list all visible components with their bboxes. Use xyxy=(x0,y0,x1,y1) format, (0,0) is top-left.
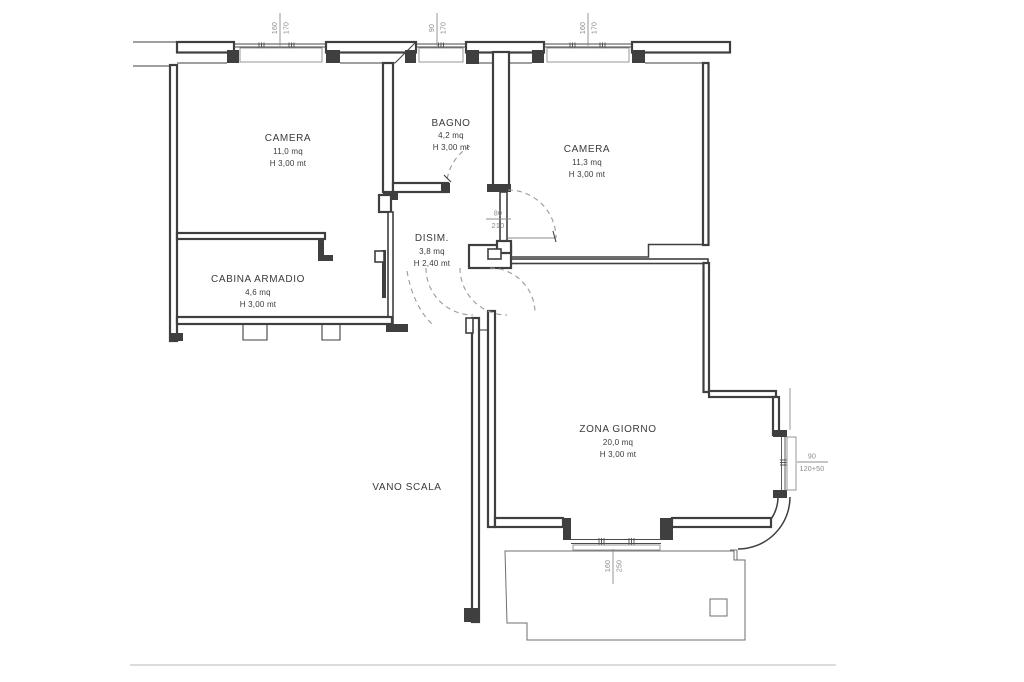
wall-foot xyxy=(487,184,511,192)
glazing-ticks xyxy=(780,460,787,465)
east-exterior-wall xyxy=(703,63,790,498)
room-name: VANO SCALA xyxy=(372,482,441,493)
camera2-west-wall xyxy=(500,192,507,247)
room-label-cabina: CABINA ARMADIO 4,6 mq H 3,00 mt xyxy=(211,274,305,309)
room-label-disim: DISIM. 3,8 mq H 2,40 mt xyxy=(414,233,451,268)
wall-foot xyxy=(170,333,183,341)
zona-west-wall xyxy=(488,311,495,527)
hall-door-arc xyxy=(508,190,556,238)
dim-height: 120+50 xyxy=(800,466,825,473)
zona-east-wall-upper xyxy=(704,263,710,392)
wall-cap xyxy=(466,318,473,333)
vano-scala-wall xyxy=(464,318,488,622)
wall-foot xyxy=(318,255,333,261)
wall-segment xyxy=(177,42,234,53)
bagno-south-wall xyxy=(393,183,450,193)
room-name: BAGNO xyxy=(431,118,470,129)
dim-width: 90 xyxy=(808,454,816,461)
dim-window-top-right: 160 170 xyxy=(580,13,599,46)
window-jamb xyxy=(773,430,787,437)
disim-west-wall xyxy=(375,195,393,325)
window-top-center xyxy=(416,43,466,63)
stair-tooth xyxy=(243,324,267,340)
camera1-cabina-wall xyxy=(177,233,333,261)
camera2-east-wall xyxy=(703,63,709,245)
room-area: 20,0 mq xyxy=(603,438,633,447)
window-sill xyxy=(419,48,463,62)
dim-height: 170 xyxy=(592,22,599,34)
room-area: 4,2 mq xyxy=(438,131,464,140)
door-jamb xyxy=(441,183,450,193)
disim-door-arc xyxy=(407,271,433,325)
dim-window-right: 90 120+50 xyxy=(797,454,828,474)
door-jamb xyxy=(375,251,384,262)
room-height: H 3,00 mt xyxy=(240,300,277,309)
room-name: CAMERA xyxy=(564,144,610,155)
camera2-zona-wall xyxy=(490,245,708,264)
dim-width: 80 xyxy=(494,211,502,218)
entrance-door-arc-2 xyxy=(460,268,507,315)
wall-foot xyxy=(464,608,479,622)
dim-height: 170 xyxy=(284,22,291,34)
zona-north-wall xyxy=(490,259,708,264)
room-label-camera2: CAMERA 11,3 mq H 3,00 mt xyxy=(564,144,610,179)
window-sill xyxy=(240,48,322,62)
window-sill xyxy=(547,48,629,62)
room-name: CAMERA xyxy=(265,133,311,144)
entrance-door xyxy=(469,241,511,268)
room-name: ZONA GIORNO xyxy=(579,424,656,435)
dim-window-bottom: 160 250 xyxy=(605,549,624,584)
dim-window-top-center: 90 170 xyxy=(429,13,448,46)
camera2-south-face xyxy=(508,245,706,258)
bagno-camera2-wall xyxy=(487,52,511,247)
window-sill xyxy=(787,437,796,490)
window-sill xyxy=(573,545,660,550)
dim-window-top-left: 160 170 xyxy=(272,13,291,46)
dim-width: 160 xyxy=(605,560,612,572)
zona-door-arc xyxy=(490,268,535,313)
zona-east-wall-mid xyxy=(773,397,779,435)
room-label-camera1: CAMERA 11,0 mq H 3,00 mt xyxy=(265,133,311,168)
pillar xyxy=(710,599,727,616)
window-jamb xyxy=(227,50,239,63)
zona-step-wall xyxy=(709,391,776,397)
window-jamb xyxy=(532,50,544,63)
window-jamb xyxy=(632,50,645,63)
room-label-bagno: BAGNO 4,2 mq H 3,00 mt xyxy=(431,118,470,152)
room-label-vano-scala: VANO SCALA xyxy=(372,482,441,493)
room-area: 11,0 mq xyxy=(273,147,303,156)
door-frame-inner xyxy=(488,249,501,259)
room-area: 3,8 mq xyxy=(419,247,445,256)
room-height: H 3,00 mt xyxy=(600,450,637,459)
bagno-west-wall xyxy=(383,63,398,200)
entrance-door-arc xyxy=(426,268,473,315)
window-jamb xyxy=(773,490,787,498)
dim-height: 250 xyxy=(617,560,624,572)
dim-height: 170 xyxy=(441,22,448,34)
dim-width: 160 xyxy=(272,22,279,34)
dim-width: 160 xyxy=(580,22,587,34)
wall-pillar xyxy=(379,195,391,212)
dim-height: 210 xyxy=(491,221,504,230)
room-label-zona: ZONA GIORNO 20,0 mq H 3,00 mt xyxy=(579,424,656,459)
floor-plan-drawing: 160 170 90 170 160 170 80 210 90 120+50 … xyxy=(0,0,1024,682)
window-right xyxy=(780,437,796,490)
room-height: H 2,40 mt xyxy=(414,259,451,268)
room-height: H 3,00 mt xyxy=(569,170,606,179)
room-name: DISIM. xyxy=(415,233,449,244)
stair-tooth xyxy=(322,324,340,340)
window-jamb xyxy=(466,50,479,64)
room-name: CABINA ARMADIO xyxy=(211,274,305,285)
wall-segment xyxy=(632,42,730,53)
wall-return xyxy=(318,238,324,257)
balcony-outline xyxy=(505,551,745,640)
room-area: 4,6 mq xyxy=(245,288,271,297)
window-jamb xyxy=(563,518,571,540)
dim-width: 90 xyxy=(429,24,436,32)
wall-foot xyxy=(386,324,408,332)
curved-corner-wall xyxy=(730,497,790,560)
room-height: H 3,00 mt xyxy=(270,159,307,168)
floor-plan-page: 160 170 90 170 160 170 80 210 90 120+50 … xyxy=(0,0,1024,682)
room-height: H 3,00 mt xyxy=(433,143,470,152)
cabina-south-wall xyxy=(177,317,408,340)
room-area: 11,3 mq xyxy=(572,158,602,167)
window-jamb xyxy=(326,50,340,63)
west-exterior-wall xyxy=(170,65,183,341)
zona-south-wall xyxy=(495,518,771,540)
window-bottom xyxy=(571,538,661,550)
